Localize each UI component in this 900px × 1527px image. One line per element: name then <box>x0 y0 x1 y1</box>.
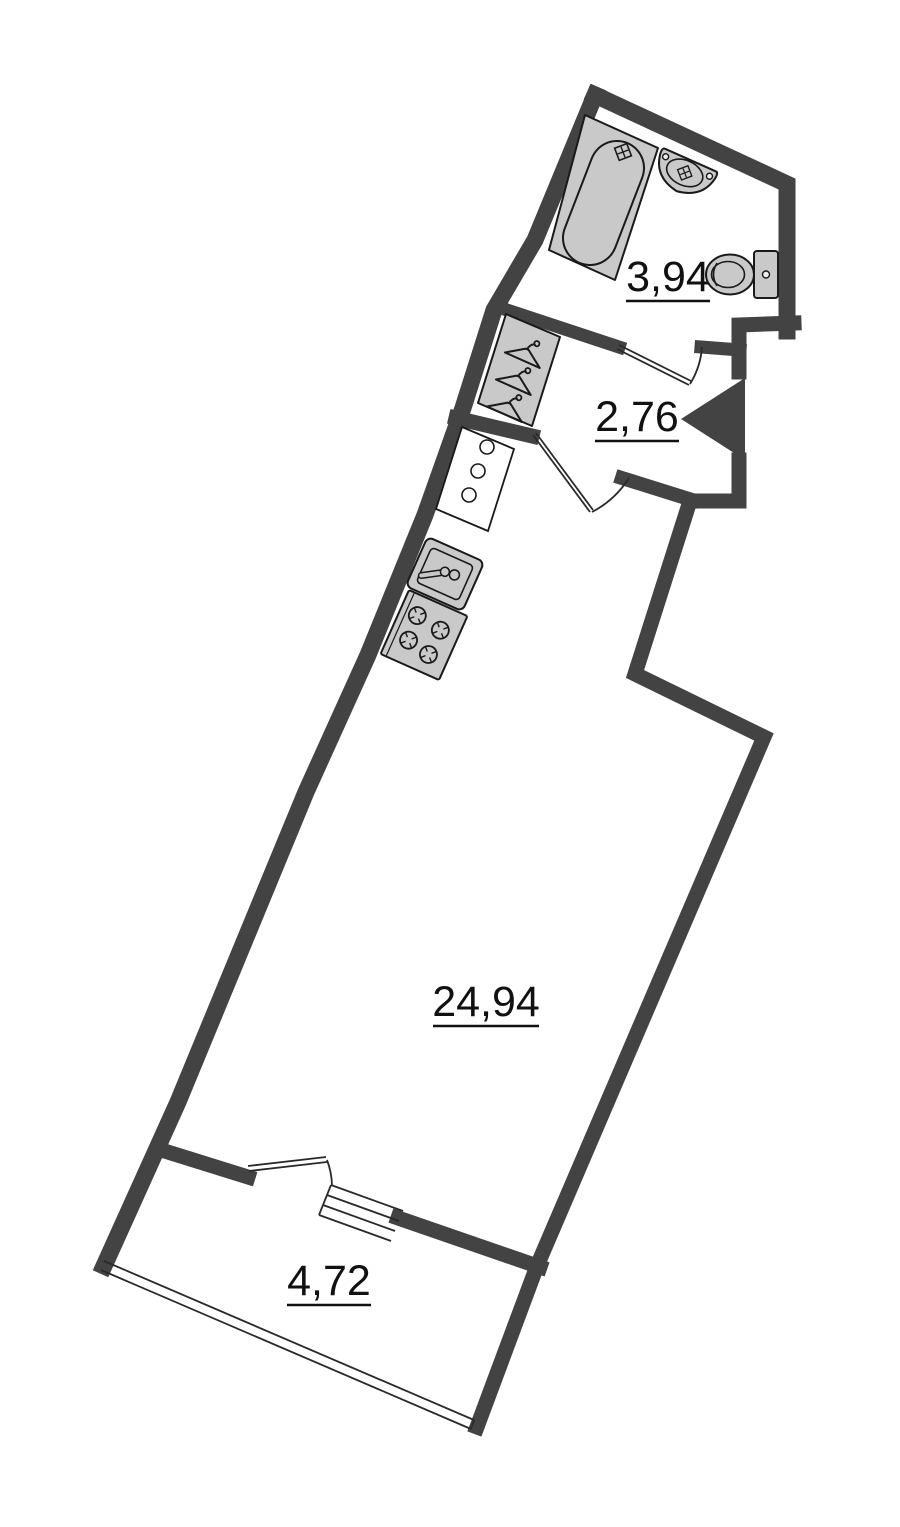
wall-right-lower <box>477 460 764 1427</box>
floor-plan: 3,94 2,76 24,94 4,72 <box>0 0 900 1527</box>
wall-hall-main-divider <box>622 478 692 500</box>
balcony-window <box>319 1185 403 1241</box>
balcony-door <box>248 1157 332 1186</box>
wall-entry-step <box>739 323 794 372</box>
wall-balcony-divider-left <box>158 1149 248 1177</box>
bathroom-door <box>617 345 702 385</box>
balcony-door-arc <box>327 1160 332 1186</box>
room-area-label-hallway: 2,76 <box>595 393 679 441</box>
wall-bath-door-stub <box>701 347 740 350</box>
wall-left <box>104 95 595 1266</box>
wall-balcony-divider-right <box>398 1218 540 1267</box>
floor-plan-page: 3,94 2,76 24,94 4,72 <box>0 0 900 1527</box>
room-area-label-balcony: 4,72 <box>287 1257 371 1305</box>
hall-door <box>533 433 629 512</box>
toilet <box>706 251 778 298</box>
room-area-label-living-kitchen: 24,94 <box>432 978 540 1026</box>
room-area-label-bathroom: 3,94 <box>626 253 710 301</box>
entrance-door-marker <box>681 378 745 460</box>
